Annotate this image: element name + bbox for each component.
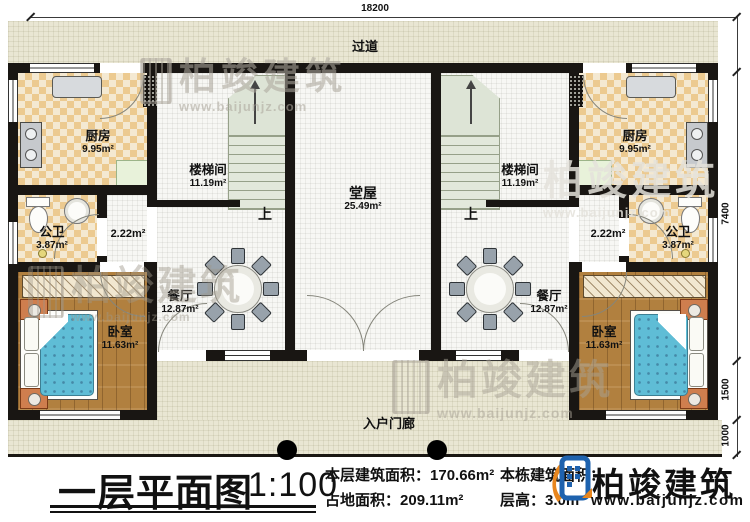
room-label-kitchen: 厨房 9.95m² xyxy=(63,130,133,155)
room-label-small-hall: 2.22m² xyxy=(98,228,158,240)
room-name: 楼梯间 xyxy=(480,164,560,178)
bed-sheet-fold xyxy=(658,314,686,360)
chair-icon xyxy=(449,282,465,296)
room-name: 餐厅 xyxy=(145,290,215,304)
burner-icon xyxy=(25,149,37,161)
door-opening xyxy=(100,262,144,272)
room-area: 3.87m² xyxy=(17,240,87,251)
room-area: 11.19m² xyxy=(168,178,248,189)
dimension-line xyxy=(30,17,737,18)
stairs-up-label: 上 xyxy=(458,204,484,224)
room-area: 11.63m² xyxy=(569,340,639,351)
room-area: 11.19m² xyxy=(480,178,560,189)
room-name: 卧室 xyxy=(85,326,155,340)
stair-arrow-head xyxy=(250,80,260,89)
door-opening xyxy=(583,63,626,73)
floor-plan-canvas: 上 上 xyxy=(0,0,750,522)
room-area: 2.22m² xyxy=(98,228,158,240)
porch-column xyxy=(427,440,447,460)
title-underline xyxy=(50,505,316,508)
company-logo-url: www.baijunjz.com xyxy=(591,492,744,509)
window xyxy=(632,63,696,73)
porch-column xyxy=(277,440,297,460)
kitchen-sink xyxy=(52,76,102,98)
room-label-kitchen: 厨房 9.95m² xyxy=(600,130,670,155)
room-area: 3.87m² xyxy=(643,240,713,251)
room-label-stairwell: 楼梯间 11.19m² xyxy=(168,164,248,189)
pillow-icon xyxy=(24,353,39,387)
room-label-bedroom: 卧室 11.63m² xyxy=(85,326,155,351)
porch-edge-line xyxy=(8,454,722,457)
room-name: 卧室 xyxy=(569,326,639,340)
burner-icon xyxy=(691,128,703,140)
room-area: 12.87m² xyxy=(145,304,215,315)
drawing-title: 一层平面图 xyxy=(58,462,253,517)
stair-direction-arrow xyxy=(254,88,256,124)
room-name: 堂屋 xyxy=(323,186,403,201)
chair-icon xyxy=(231,314,245,330)
room-label-dining: 餐厅 12.87m² xyxy=(514,290,584,315)
flue-shaft xyxy=(143,75,157,107)
window xyxy=(40,410,120,420)
burner-icon xyxy=(25,128,37,140)
room-area: 11.63m² xyxy=(85,340,155,351)
double-door-opening xyxy=(307,350,419,361)
window xyxy=(30,63,94,73)
room-name: 公卫 xyxy=(17,226,87,240)
room-label-bathroom: 公卫 3.87m² xyxy=(643,226,713,251)
corridor-label: 过道 xyxy=(315,36,415,55)
entry-porch-floor xyxy=(157,361,569,420)
room-area: 12.87m² xyxy=(514,304,584,315)
title-underline xyxy=(50,511,316,513)
burner-icon xyxy=(691,149,703,161)
room-name: 厨房 xyxy=(63,130,133,144)
room-label-stairwell: 楼梯间 11.19m² xyxy=(480,164,560,189)
window xyxy=(708,80,718,122)
stair-arrow-head xyxy=(466,80,476,89)
stove xyxy=(20,122,42,168)
stairs-up-label: 上 xyxy=(252,204,278,224)
room-area: 2.22m² xyxy=(578,228,638,240)
room-name: 厨房 xyxy=(600,130,670,144)
wall-kitchen-right-bottom xyxy=(569,185,718,195)
wall-stair-stub-right xyxy=(486,200,569,207)
kitchen-counter xyxy=(577,160,612,186)
chair-icon xyxy=(231,248,245,264)
room-area: 9.95m² xyxy=(600,144,670,155)
chair-icon xyxy=(263,282,279,296)
floor-area-value: 170.66m² xyxy=(430,467,494,484)
kitchen-sink xyxy=(626,76,676,98)
wall-hall-right xyxy=(431,73,441,361)
window xyxy=(225,350,270,361)
room-label-dining: 餐厅 12.87m² xyxy=(145,290,215,315)
land-area-text: 占地面积：209.11m² xyxy=(325,489,463,510)
kitchen-counter xyxy=(116,160,151,186)
room-name: 餐厅 xyxy=(514,290,584,304)
company-logo-icon xyxy=(548,454,592,511)
wall-hall-left xyxy=(285,73,295,361)
entry-porch-label: 入户门廊 xyxy=(339,413,439,432)
flue-shaft xyxy=(569,75,583,107)
round-table-icon xyxy=(466,265,514,313)
pillow-icon xyxy=(24,317,39,351)
pillow-icon xyxy=(689,353,704,387)
round-table-icon xyxy=(214,265,262,313)
stair-direction-arrow xyxy=(470,88,472,124)
pillow-icon xyxy=(689,317,704,351)
bed-sheet-fold xyxy=(40,314,68,360)
dimension-right-main: 7400 xyxy=(721,198,732,230)
room-name: 公卫 xyxy=(643,226,713,240)
wall-kitchen-left-bottom xyxy=(8,185,157,195)
window xyxy=(456,350,501,361)
dimension-right-porch: 1500 xyxy=(721,374,732,406)
dimension-line xyxy=(737,17,738,457)
room-label-bedroom: 卧室 11.63m² xyxy=(569,326,639,351)
room-area: 9.95m² xyxy=(63,144,133,155)
room-label-small-hall: 2.22m² xyxy=(578,228,638,240)
floor-area-label: 本层建筑面积： xyxy=(325,467,430,484)
dimension-right-step: 1000 xyxy=(721,420,732,452)
window xyxy=(8,80,18,122)
chair-icon xyxy=(483,248,497,264)
wall-stair-stub-left xyxy=(157,200,240,207)
room-label-bathroom: 公卫 3.87m² xyxy=(17,226,87,251)
chair-icon xyxy=(483,314,497,330)
land-area-value: 209.11m² xyxy=(400,492,463,509)
stove xyxy=(686,122,708,168)
door-opening xyxy=(100,63,143,73)
room-area: 25.49m² xyxy=(323,201,403,212)
land-area-label: 占地面积： xyxy=(325,492,400,509)
dimension-top-width: 18200 xyxy=(340,3,410,14)
window xyxy=(606,410,686,420)
floor-area-text: 本层建筑面积：170.66m² xyxy=(325,464,494,485)
room-name: 楼梯间 xyxy=(168,164,248,178)
room-label-hall: 堂屋 25.49m² xyxy=(323,186,403,212)
floor-height-label: 层高： xyxy=(500,492,545,509)
door-opening xyxy=(582,262,626,272)
